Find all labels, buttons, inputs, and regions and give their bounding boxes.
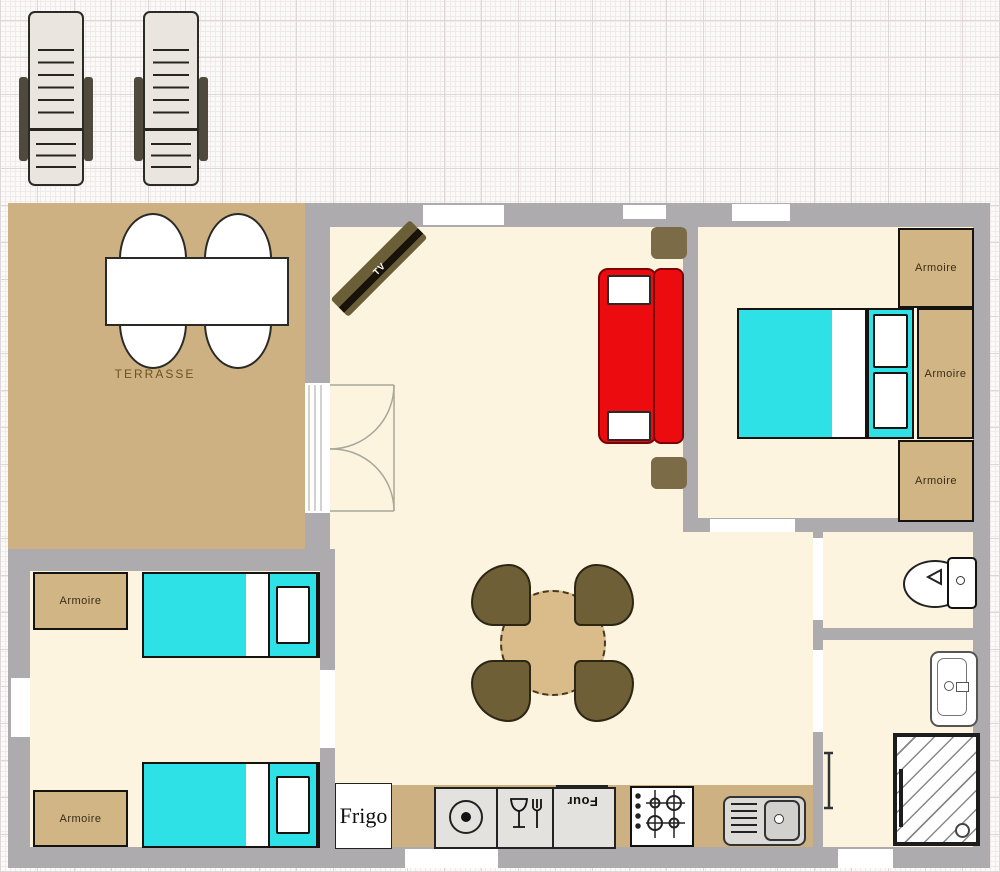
shower-door [899,769,903,827]
washbasin[interactable] [930,651,978,727]
door-opening-bedroom2 [320,670,335,748]
window [623,205,666,219]
bed-blanket [144,574,246,656]
shower[interactable] [893,733,980,846]
washbasin-drain [944,681,954,691]
shower-drain [955,823,970,838]
kitchen-sink[interactable] [723,796,806,846]
bed-pillow [873,372,908,429]
sofa-pillow [607,275,651,305]
lounger-rail [84,77,93,161]
armoire-label: Armoire [59,595,101,607]
fridge-label: Frigo [340,803,388,829]
lounger-slats [38,49,74,124]
lounger-slats [153,49,189,124]
lounger-rail [199,77,208,161]
armoire[interactable]: Armoire [917,308,974,439]
armoire[interactable]: Armoire [898,228,974,308]
lounger-rail [134,77,143,161]
bed-pillow [276,776,310,834]
dishwasher[interactable] [496,787,560,849]
sofa-backrest [653,268,684,444]
single-bed[interactable] [142,572,320,658]
sun-lounger[interactable] [19,11,93,186]
door-opening-bathroom [813,650,823,732]
sofa-pillow [607,411,651,441]
sun-lounger[interactable] [134,11,208,186]
terrace-table[interactable] [105,257,289,326]
lounger-divider [30,128,82,131]
lounger-rail [19,77,28,161]
armoire-label: Armoire [915,475,957,487]
lounger-body [28,11,84,186]
door-opening-bedroom1 [710,519,795,532]
door-opening-wc [813,538,823,620]
bed-headboard [268,762,318,848]
bed-headboard [268,572,318,658]
armoire[interactable]: Armoire [898,440,974,522]
gas-stove[interactable] [630,786,694,847]
tv-label: TV [371,260,388,277]
window [838,849,893,868]
side-table[interactable] [651,457,687,489]
fridge[interactable]: Frigo [335,783,392,849]
window [11,678,30,737]
hotplate[interactable] [434,787,499,849]
bed-pillow [276,586,310,644]
window [732,204,790,221]
oven-handle [556,785,608,788]
lounger-slats [151,143,191,171]
double-bed[interactable] [737,308,867,439]
hotplate-dot [461,812,471,822]
window [423,205,504,225]
wall-wc-bathroom [823,628,973,640]
door-opening-terrace [305,383,330,513]
armoire[interactable]: Armoire [33,572,128,630]
toilet-flush-button [956,576,965,585]
wall-terrace-bottom [8,549,335,571]
lounger-divider [145,128,197,131]
armoire-label: Armoire [915,262,957,274]
sofa[interactable] [598,268,685,445]
side-table[interactable] [651,227,687,259]
floor-plan-canvas: TERRASSE TV Frigo Four [0,0,1000,872]
armoire-label: Armoire [924,368,966,380]
oven-label-wrap: Four [552,793,612,811]
single-bed[interactable] [142,762,320,848]
lounger-slats [36,143,76,171]
window [405,849,498,868]
lounger-body [143,11,199,186]
armoire-label: Armoire [59,813,101,825]
washbasin-faucet [956,682,969,692]
bed-blanket [144,764,246,846]
terrace-label: TERRASSE [95,367,215,381]
bed-headboard [867,308,914,439]
bed-pillow [873,314,908,368]
sink-drain [774,814,784,824]
oven-label: Four [567,794,598,809]
bed-blanket [739,310,832,437]
armoire[interactable]: Armoire [33,790,128,847]
